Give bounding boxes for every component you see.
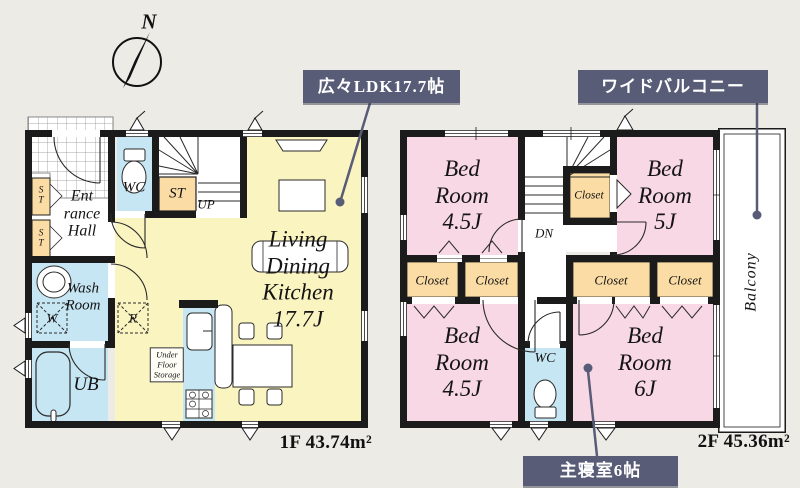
- room-label-wash-room: Wash Room: [66, 281, 101, 314]
- room-label-wc-2f: WC: [535, 351, 556, 367]
- room-label-ub: UB: [73, 374, 98, 396]
- compass-icon: [113, 32, 161, 88]
- closet-label-3: Closet: [594, 272, 627, 287]
- room-label-bedroom-sw: Bed Room 4.5J: [435, 323, 489, 403]
- closet-label-4: Closet: [668, 272, 701, 287]
- room-label-bedroom-nw: Bed Room 4.5J: [435, 156, 489, 236]
- room-label-bedroom-se: Bed Room 6J: [618, 323, 672, 403]
- room-label-storage-2: ST: [37, 230, 46, 249]
- closet-label-2: Closet: [475, 272, 508, 287]
- room-label-bedroom-ne: Bed Room 5J: [638, 156, 692, 236]
- under-floor-storage-label: Under Floor Storage: [150, 347, 184, 382]
- callout-wide-balcony: ワイドバルコニー: [578, 70, 768, 103]
- compass-north-label: N: [141, 10, 156, 35]
- callout-ldk: 広々LDK17.7帖: [303, 70, 460, 103]
- washer-label: W: [47, 310, 58, 325]
- floor1-area-label: 1F 43.74m²: [232, 432, 372, 454]
- floorplan-page: N 広々LDK17.7帖 ワイドバルコニー 主寝室6帖 ST ST WC ST …: [0, 0, 800, 488]
- callout-master-bedroom: 主寝室6帖: [523, 456, 678, 486]
- room-label-storage-3: ST: [169, 185, 185, 202]
- stairs-dn-label: DN: [535, 225, 553, 240]
- room-label-entrance-hall: Ent rance Hall: [64, 188, 100, 241]
- closet-stair-label: Closet: [574, 189, 603, 202]
- closet-label-1: Closet: [415, 272, 448, 287]
- room-label-storage-1: ST: [37, 187, 46, 206]
- balcony-label: Balcony: [743, 252, 762, 311]
- room-label-wc-1f: WC: [123, 179, 146, 196]
- fridge-label: R: [129, 310, 137, 325]
- room-label-ldk: Living Dining Kitchen 17.7J: [262, 227, 334, 334]
- floor2-area-label: 2F 45.36m²: [650, 431, 790, 453]
- stairs-up-label: UP: [197, 196, 214, 211]
